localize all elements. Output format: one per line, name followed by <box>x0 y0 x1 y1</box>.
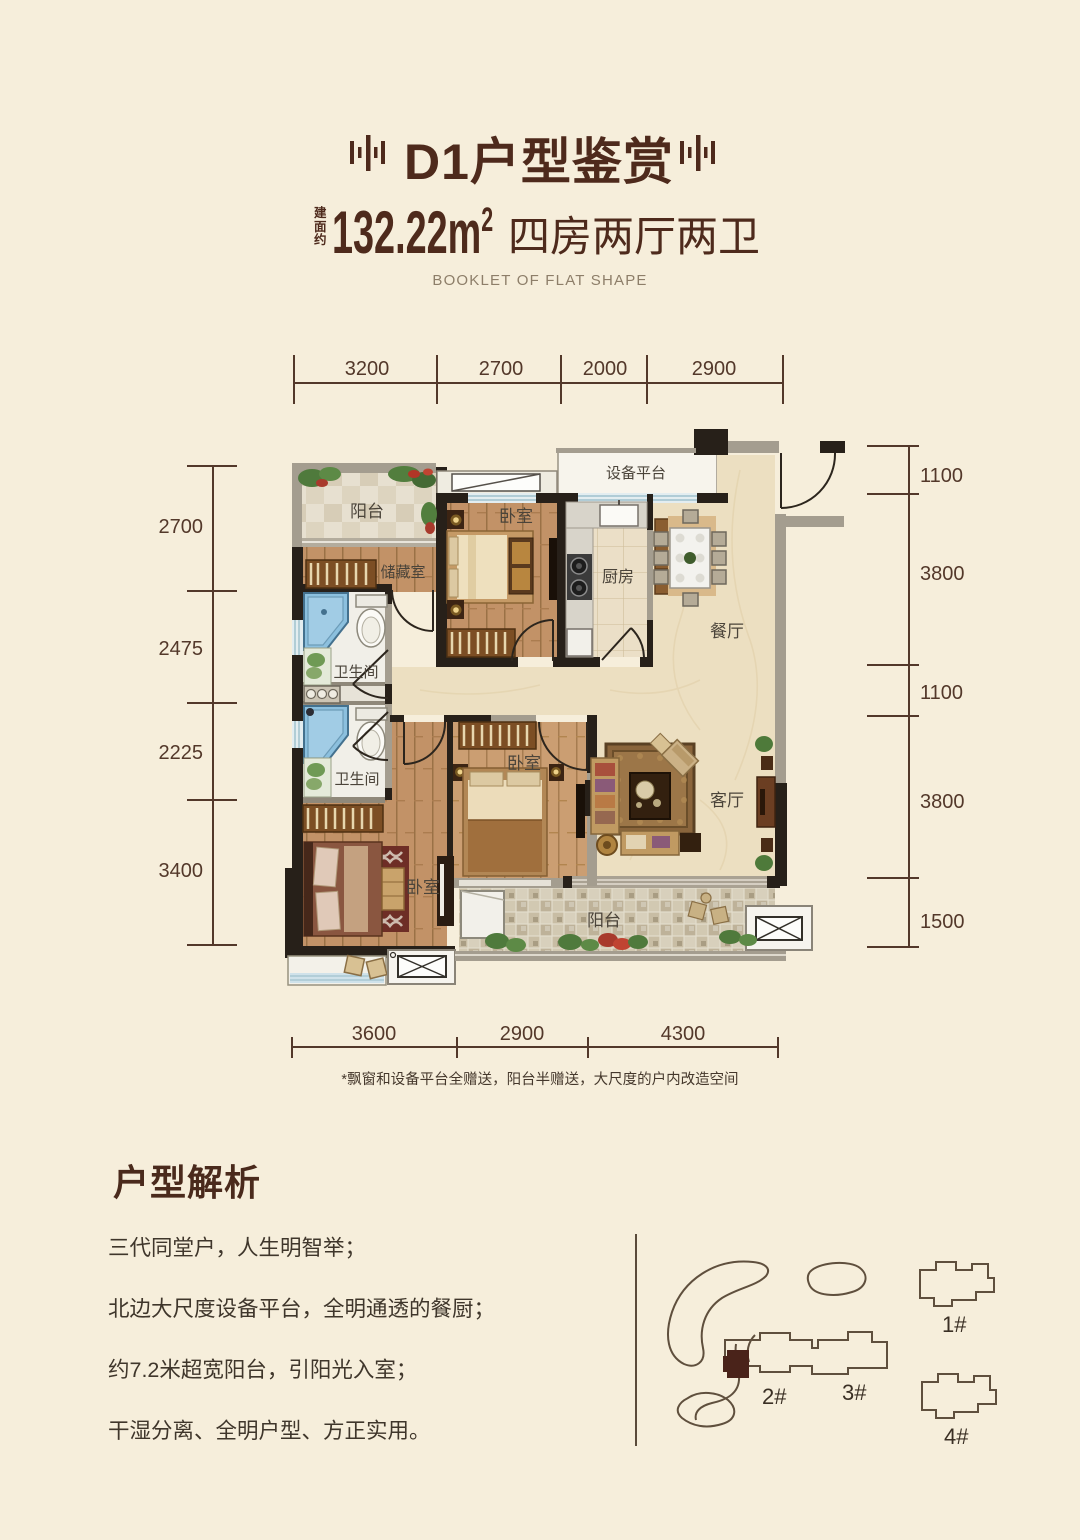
svg-text:设备平台: 设备平台 <box>606 465 666 482</box>
svg-text:2000: 2000 <box>583 358 628 380</box>
svg-text:卧室: 卧室 <box>499 507 533 526</box>
svg-text:2900: 2900 <box>692 358 737 380</box>
svg-text:卫生间: 卫生间 <box>333 664 378 681</box>
svg-text:3400: 3400 <box>159 860 204 882</box>
svg-text:厨房: 厨房 <box>602 568 634 586</box>
svg-text:3#: 3# <box>842 1380 867 1405</box>
svg-text:1100: 1100 <box>920 465 963 487</box>
svg-text:3200: 3200 <box>345 358 390 380</box>
svg-text:卧室: 卧室 <box>507 754 541 773</box>
svg-text:卫生间: 卫生间 <box>334 771 379 788</box>
svg-text:2700: 2700 <box>159 516 204 538</box>
svg-text:客厅: 客厅 <box>710 791 744 810</box>
svg-text:阳台: 阳台 <box>587 911 621 930</box>
svg-text:4300: 4300 <box>661 1023 706 1045</box>
svg-text:阳台: 阳台 <box>350 502 384 521</box>
svg-text:1100: 1100 <box>920 682 963 704</box>
svg-text:2#: 2# <box>762 1384 787 1409</box>
svg-text:2225: 2225 <box>159 742 204 764</box>
svg-text:3800: 3800 <box>920 791 965 813</box>
svg-text:2900: 2900 <box>500 1023 545 1045</box>
svg-text:1#: 1# <box>942 1312 967 1337</box>
svg-text:储藏室: 储藏室 <box>380 564 425 581</box>
svg-text:4#: 4# <box>944 1424 969 1449</box>
svg-text:3600: 3600 <box>352 1023 397 1045</box>
svg-text:2700: 2700 <box>479 358 524 380</box>
svg-text:1500: 1500 <box>920 911 965 933</box>
svg-text:卧室: 卧室 <box>406 878 440 897</box>
svg-text:3800: 3800 <box>920 563 965 585</box>
svg-text:餐厅: 餐厅 <box>710 622 744 641</box>
svg-text:2475: 2475 <box>159 638 204 660</box>
